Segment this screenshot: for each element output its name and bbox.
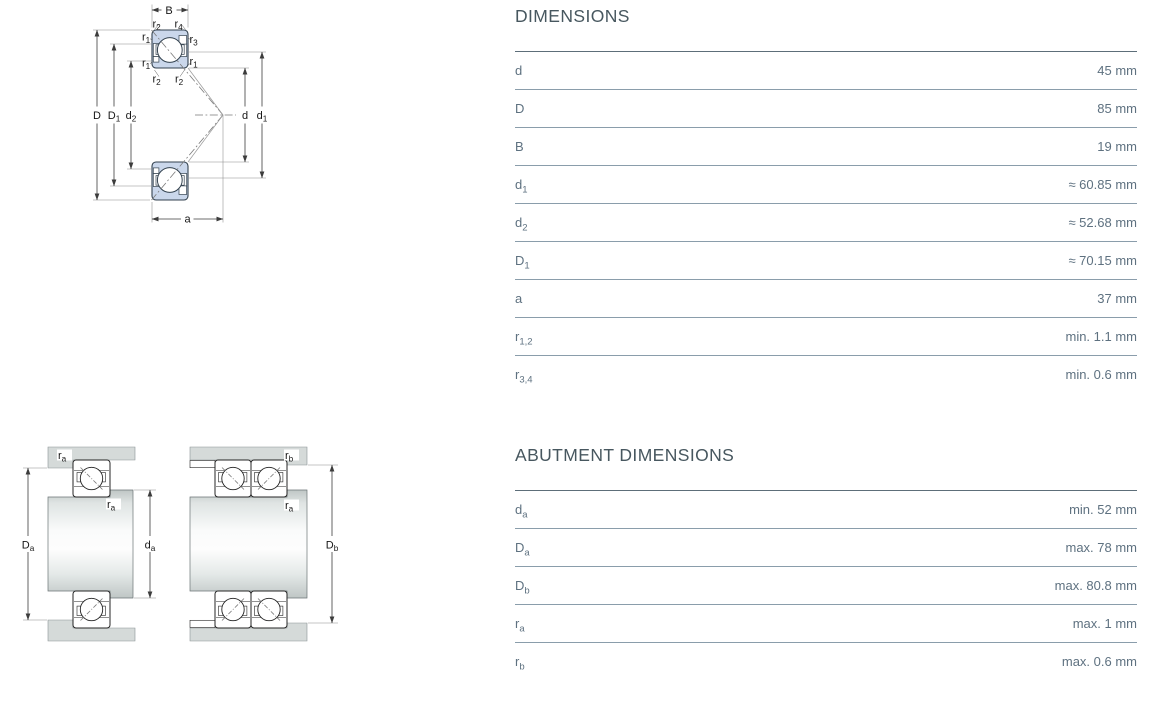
spec-row-d1: d1 ≈ 60.85 mm (515, 166, 1137, 204)
spec-row-d2: d2 ≈ 52.68 mm (515, 204, 1137, 242)
spec-label: d2 (515, 215, 528, 230)
spec-label: Da (515, 540, 530, 555)
upper-bearing-section (152, 30, 188, 68)
dim-label-Db: Db (326, 540, 339, 553)
spec-value: max. 0.6 mm (1062, 654, 1137, 669)
radius-label-r1-lower-left: r1 (142, 58, 151, 71)
spec-row-r34: r3,4 min. 0.6 mm (515, 356, 1137, 393)
dim-label-D: D (93, 110, 101, 122)
spec-label: r3,4 (515, 367, 533, 382)
spec-value: ≈ 60.85 mm (1068, 177, 1137, 192)
single-mount-upper-bearing (73, 460, 110, 497)
abutment-dimensions-section: ABUTMENT DIMENSIONS da min. 52 mm Da max… (515, 445, 1137, 680)
abutment-dimensions-title: ABUTMENT DIMENSIONS (515, 445, 1137, 466)
dim-label-B: B (165, 5, 172, 17)
paired-mount-upper-bearings (215, 460, 287, 497)
radius-label-r2-bottom-left: r2 (153, 74, 162, 87)
spec-row-rb: rb max. 0.6 mm (515, 643, 1137, 680)
spec-label: D (515, 101, 524, 116)
dim-label-D1: D1 (108, 110, 121, 123)
spec-label: B (515, 139, 524, 154)
paired-mount-lower-bearings (215, 591, 287, 628)
spec-row-Db: Db max. 80.8 mm (515, 567, 1137, 605)
radius-label-r3-upper-right: r3 (190, 34, 199, 47)
spec-row-Da: Da max. 78 mm (515, 529, 1137, 567)
spec-row-B: B 19 mm (515, 128, 1137, 166)
spec-label: da (515, 502, 528, 517)
dim-label-Da: Da (22, 540, 35, 553)
dimensions-title: DIMENSIONS (515, 6, 1137, 27)
dim-label-a: a (184, 214, 191, 226)
spec-row-da: da min. 52 mm (515, 491, 1137, 529)
bearing-cross-section-figure: B r2 r4 r1 r3 r1 r1 r2 r2 D D1 d2 d d1 a (0, 0, 320, 250)
radius-label-r2-top-left: r2 (153, 19, 162, 32)
radius-label-r1-upper-left: r1 (142, 32, 151, 45)
spec-label: rb (515, 654, 525, 669)
spec-value: ≈ 70.15 mm (1068, 253, 1137, 268)
spec-row-D: D 85 mm (515, 90, 1137, 128)
spec-row-r12: r1,2 min. 1.1 mm (515, 318, 1137, 356)
spec-row-D1: D1 ≈ 70.15 mm (515, 242, 1137, 280)
spec-row-a: a 37 mm (515, 280, 1137, 318)
spec-label: d1 (515, 177, 528, 192)
radius-label-r1-lower-right: r1 (190, 56, 199, 69)
spec-value: max. 80.8 mm (1055, 578, 1137, 593)
spec-label: Db (515, 578, 530, 593)
spec-label: ra (515, 616, 525, 631)
spec-row-ra: ra max. 1 mm (515, 605, 1137, 643)
page: B r2 r4 r1 r3 r1 r1 r2 r2 D D1 d2 d d1 a (0, 0, 1161, 718)
spec-value: 37 mm (1097, 291, 1137, 306)
spec-value: max. 1 mm (1073, 616, 1137, 631)
spec-row-d: d 45 mm (515, 52, 1137, 90)
dim-label-d: d (242, 110, 248, 122)
spec-label: D1 (515, 253, 530, 268)
lower-bearing-section (152, 162, 188, 200)
dim-label-da: da (145, 540, 156, 553)
spec-label: d (515, 63, 522, 78)
spec-value: min. 52 mm (1069, 502, 1137, 517)
spec-value: 85 mm (1097, 101, 1137, 116)
spec-value: max. 78 mm (1065, 540, 1137, 555)
dimensions-section: DIMENSIONS d 45 mm D 85 mm B 19 mm d1 ≈ … (515, 6, 1137, 393)
spec-value: ≈ 52.68 mm (1068, 215, 1137, 230)
radius-label-r4-top-right: r4 (175, 19, 184, 32)
abutment-dimensions-figure: ra ra Da da (0, 430, 360, 692)
single-mount-lower-bearing (73, 591, 110, 628)
dim-label-d1: d1 (257, 110, 268, 123)
spec-value: min. 0.6 mm (1065, 367, 1137, 382)
radius-label-r2-bottom-right: r2 (175, 74, 184, 87)
spec-value: 19 mm (1097, 139, 1137, 154)
spec-label: r1,2 (515, 329, 533, 344)
dim-label-d2: d2 (126, 110, 137, 123)
spec-label: a (515, 291, 522, 306)
spec-value: 45 mm (1097, 63, 1137, 78)
spec-value: min. 1.1 mm (1065, 329, 1137, 344)
